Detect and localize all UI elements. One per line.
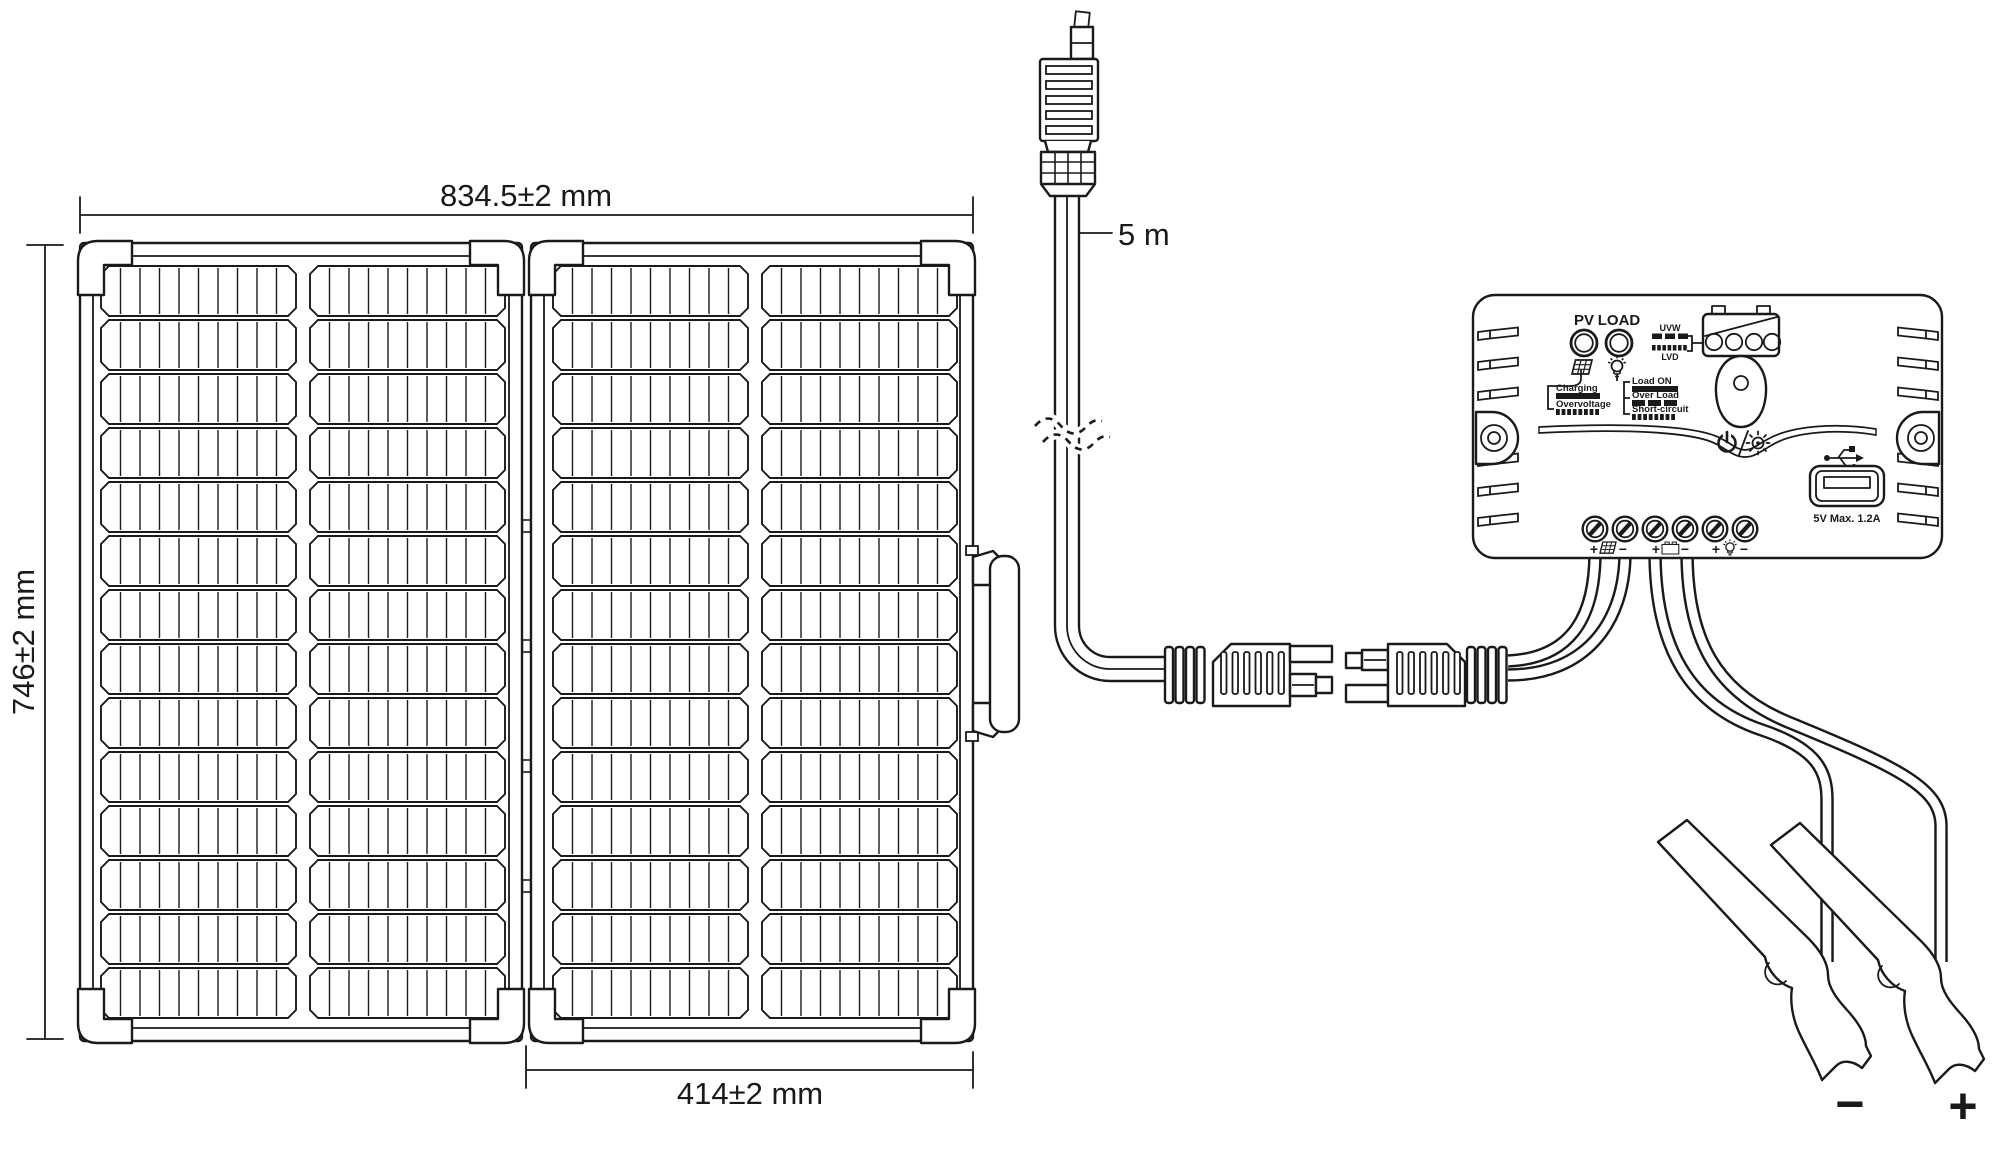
sae-connector-top (1040, 11, 1098, 196)
usb-port (1810, 466, 1884, 506)
lvd-dots (1652, 345, 1687, 351)
panel-cable: 5 m (1035, 11, 1172, 681)
pv-plus-mark: + (1590, 541, 1598, 557)
uvw-label: UVW (1660, 323, 1682, 333)
over-load-label: Over Load (1632, 390, 1679, 401)
pv-label: PV (1574, 312, 1594, 329)
alligator-clip-negative (1658, 820, 1871, 1080)
sae-connector-male (1165, 644, 1332, 706)
cable-break-symbol (1035, 419, 1110, 450)
load-label: LOAD (1598, 312, 1641, 329)
panel-half-left (80, 243, 522, 1041)
solar-panel (78, 241, 1019, 1043)
terminal-pv-plus (1583, 517, 1608, 542)
load-plus-mark: + (1712, 541, 1720, 557)
lvd-label: LVD (1661, 352, 1679, 362)
terminal-load-plus (1703, 517, 1728, 542)
terminal-battery-minus (1673, 517, 1698, 542)
charging-label: Charging (1556, 383, 1598, 394)
charge-controller: PV LOAD Charging Overvoltage Load ON Ove… (1473, 295, 1942, 558)
cable-length-callout: 5 m (1080, 217, 1170, 252)
terminal-load-minus (1733, 517, 1758, 542)
panel-height-dimension: 746±2 mm (6, 569, 41, 715)
clamp-negative-label: − (1835, 1076, 1864, 1132)
terminal-pv-minus (1613, 517, 1638, 542)
load-on-label: Load ON (1632, 376, 1672, 387)
mount-hole-right (1897, 412, 1939, 464)
pv-led (1571, 330, 1597, 356)
sae-connector-female (1346, 644, 1507, 706)
pv-minus-mark: − (1619, 541, 1627, 557)
usb-rating-label: 5V Max. 1.2A (1813, 513, 1880, 525)
dimension-height: 746±2 mm (6, 245, 63, 1039)
mount-hole-left (1476, 412, 1518, 464)
diagram-canvas: 834.5±2 mm 746±2 mm 414±2 mm (0, 0, 2000, 1153)
overvoltage-label: Overvoltage (1556, 399, 1611, 410)
panel-width-dimension: 834.5±2 mm (440, 178, 612, 213)
light-sensor-dome (1716, 356, 1766, 427)
battery-plus-mark: + (1652, 541, 1660, 557)
dimension-half-width: 414±2 mm (526, 1046, 973, 1111)
panel-half-width-dimension: 414±2 mm (677, 1076, 823, 1111)
gear-icon (1747, 432, 1770, 455)
battery-icon (1703, 306, 1780, 356)
terminal-battery-plus (1643, 517, 1668, 542)
battery-minus-mark: − (1681, 541, 1689, 557)
dimension-width: 834.5±2 mm (80, 178, 973, 233)
solar-kit-diagram: 834.5±2 mm 746±2 mm 414±2 mm (0, 0, 2000, 1153)
load-led (1606, 330, 1632, 356)
short-circuit-label: Short-circuit (1632, 404, 1689, 415)
load-minus-mark: − (1740, 541, 1748, 557)
panel-half-right (531, 243, 973, 1041)
clamp-positive-label: + (1948, 1078, 1977, 1134)
uvw-dashes (1652, 334, 1688, 340)
cable-length-label: 5 m (1118, 217, 1170, 252)
